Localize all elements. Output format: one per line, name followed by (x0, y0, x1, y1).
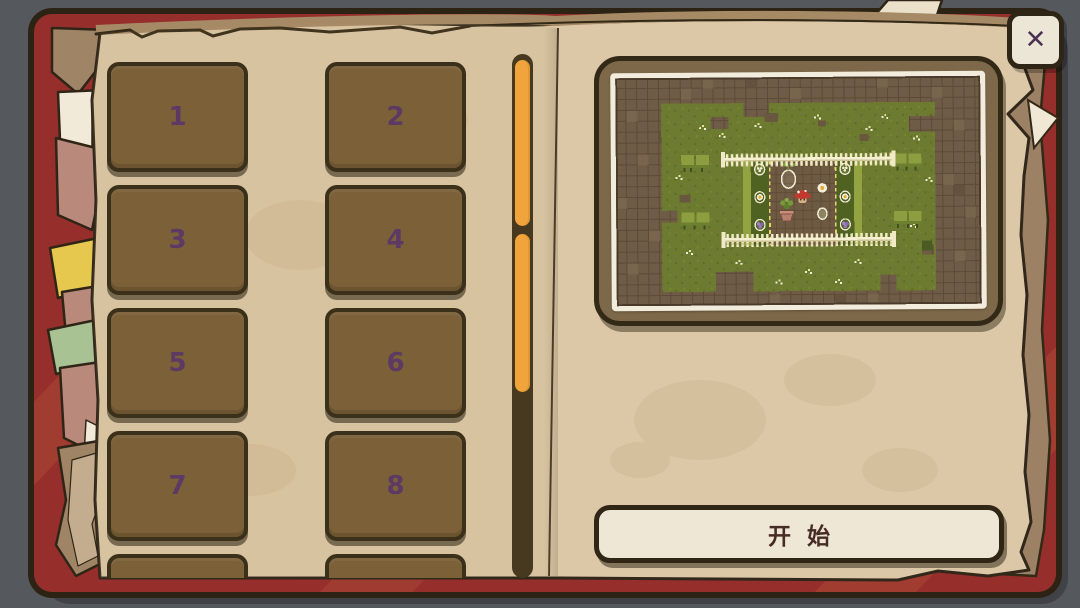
level-select-screen: 12345678 (0, 0, 1080, 608)
level-button-8[interactable]: 8 (325, 431, 466, 541)
start-button[interactable]: 开始 (594, 505, 1004, 563)
close-button[interactable]: ✕ (1007, 11, 1064, 69)
level-button-2[interactable]: 2 (325, 62, 466, 172)
level-button-3[interactable]: 3 (107, 185, 248, 295)
level-button-4[interactable]: 4 (325, 185, 466, 295)
level-button-7[interactable]: 7 (107, 431, 248, 541)
sprout-outline (781, 170, 795, 188)
map-preview-photo-border (610, 71, 987, 312)
scrollbar-thumb-upper[interactable] (515, 60, 530, 226)
level-button-5[interactable]: 5 (107, 308, 248, 418)
level-button-partial[interactable] (107, 554, 248, 578)
map-preview (615, 76, 982, 307)
level-button-partial[interactable] (325, 554, 466, 578)
map-preview-frame (594, 56, 1003, 326)
level-list-scrollbar-track[interactable] (512, 54, 533, 578)
scrollbar-thumb-lower[interactable] (515, 234, 530, 392)
center-dirt-plot (769, 160, 837, 246)
level-button-6[interactable]: 6 (325, 308, 466, 418)
egg-outline (818, 208, 827, 219)
level-grid: 12345678 (84, 22, 556, 578)
close-icon: ✕ (1025, 25, 1047, 55)
level-button-1[interactable]: 1 (107, 62, 248, 172)
